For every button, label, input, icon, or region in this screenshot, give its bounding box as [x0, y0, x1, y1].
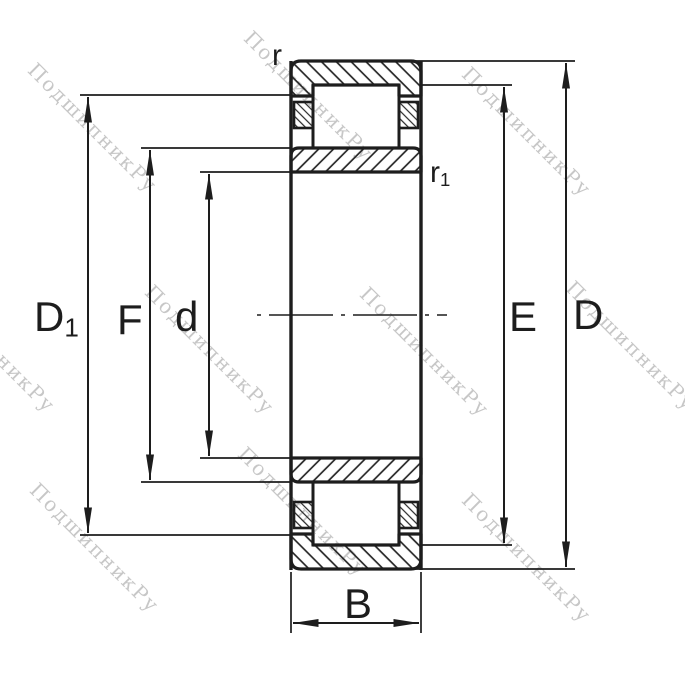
- outer-ring-bottom-section: [291, 534, 421, 569]
- dim-label-B-text: B: [344, 580, 372, 627]
- cage-top-right: [399, 102, 418, 128]
- dim-label-E-text: E: [509, 293, 537, 340]
- dim-label-D1-base: D: [34, 293, 64, 340]
- bearing-diagram-graphics: [0, 0, 685, 689]
- inner-ring-bottom-section: [291, 458, 421, 482]
- dim-label-r1-base: r: [430, 156, 440, 189]
- dim-label-F: F: [117, 299, 143, 341]
- bearing-drawing-page: ПодшипникРу ПодшипникРу ПодшипникРу Подш…: [0, 0, 685, 689]
- dim-label-D: D: [573, 294, 603, 336]
- dim-label-d-text: d: [175, 293, 198, 340]
- dim-label-E: E: [509, 296, 537, 338]
- cage-bottom-right: [399, 502, 418, 528]
- dim-label-r1: r1: [430, 158, 450, 190]
- dim-label-F-text: F: [117, 296, 143, 343]
- dim-label-D1-sub: 1: [64, 313, 78, 343]
- dim-label-r-text: r: [272, 39, 282, 72]
- outer-ring-top-section: [291, 61, 421, 96]
- roller-bottom: [313, 482, 399, 545]
- dim-label-D1: D1: [34, 296, 79, 341]
- roller-top: [313, 85, 399, 148]
- dim-label-d: d: [175, 296, 198, 338]
- dim-label-D-text: D: [573, 291, 603, 338]
- cage-top-left: [294, 102, 313, 128]
- cage-bottom-left: [294, 502, 313, 528]
- dim-label-r: r: [272, 41, 282, 71]
- dim-label-B: B: [344, 583, 372, 625]
- inner-ring-top-section: [291, 148, 421, 172]
- dim-label-r1-sub: 1: [440, 169, 450, 190]
